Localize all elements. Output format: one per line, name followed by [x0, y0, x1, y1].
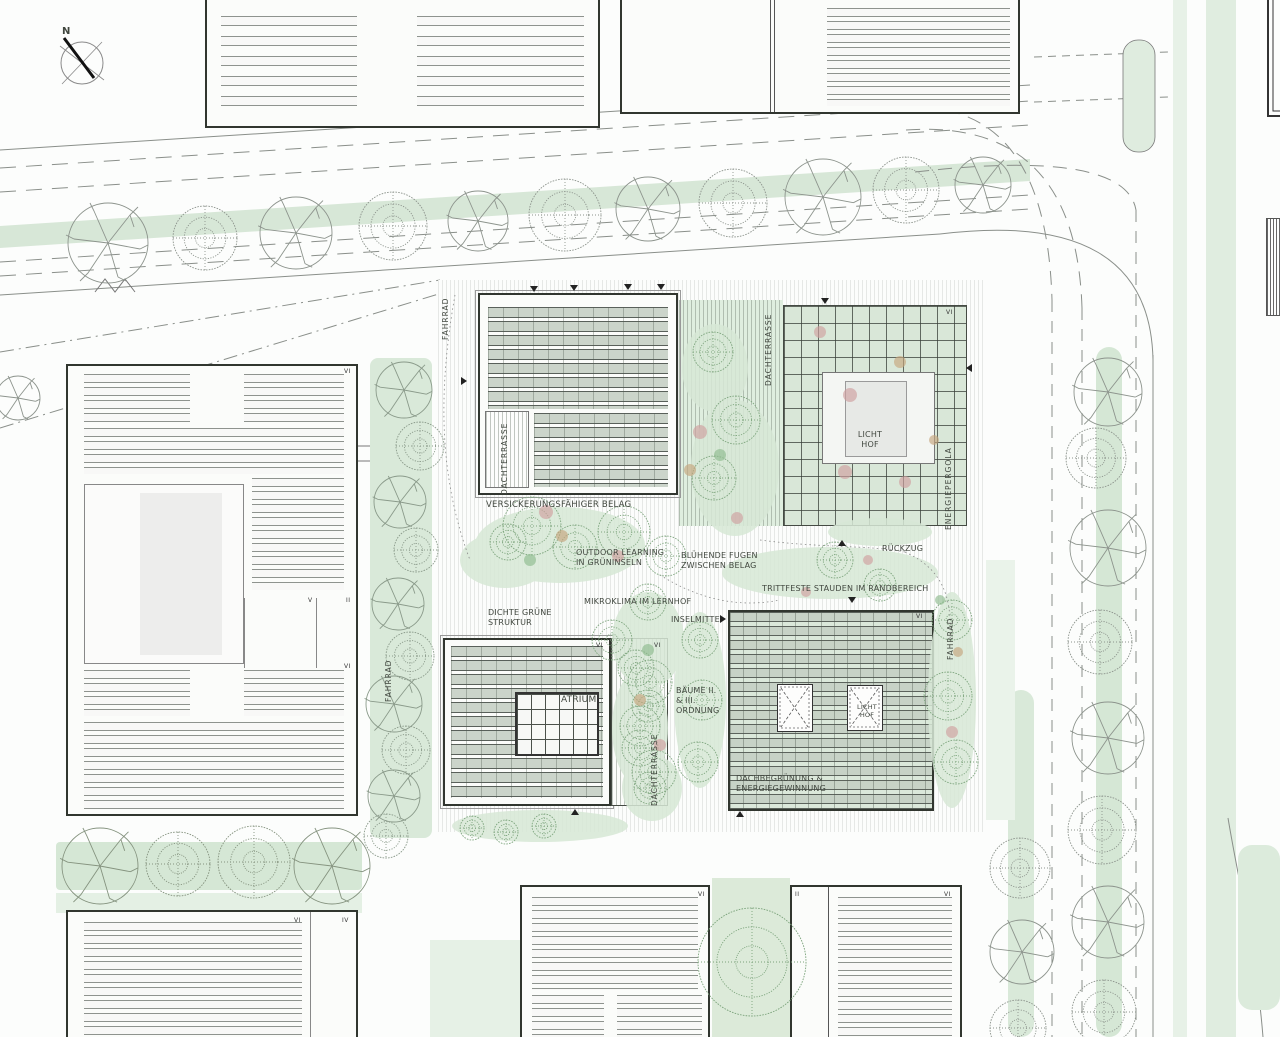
label-trittfeste: TRITTFESTE STAUDEN IM RANDBEREICH	[762, 584, 928, 594]
roof-stripes	[617, 995, 702, 1037]
roof-stripes	[532, 897, 698, 990]
roof-stripes	[84, 374, 190, 424]
light-court-ne	[822, 372, 935, 464]
label-rueckzug: RÜCKZUG	[882, 544, 923, 554]
storey-mark: II	[346, 597, 351, 604]
label-versickerung: VERSICKERUNGSFÄHIGER BELAG	[486, 500, 631, 511]
storey-mark: IV	[342, 917, 349, 924]
skylight-x	[778, 685, 811, 730]
roof-stripes	[827, 8, 1010, 106]
label-atrium: ATRIUM	[561, 695, 596, 706]
cross-road	[1008, 0, 1236, 1037]
storey-mark: VI	[596, 642, 603, 649]
label-dichte-gruene: DICHTE GRÜNE STRUKTUR	[488, 608, 552, 628]
green-verge-southeast	[1238, 845, 1280, 1010]
storey-mark: VI	[944, 891, 951, 898]
site-plan-canvas: N VERSICKERUNGSFÄHIGER BELAG OUTDOOR LEA…	[0, 0, 1280, 1037]
wall-line	[310, 912, 311, 1037]
label-energiepergola: ENERGIEPERGOLA	[944, 438, 954, 530]
label-bluehende-fugen: BLÜHENDE FUGEN ZWISCHEN BELAG	[681, 551, 758, 571]
context-building-north-b	[620, 0, 1020, 114]
roof-gap	[357, 0, 417, 126]
roof-stripes	[532, 995, 604, 1037]
label-baeume: BÄUME II. & III. ORDNUNG	[676, 686, 719, 716]
storey-mark: VI	[344, 663, 351, 670]
context-building-south-a	[66, 910, 358, 1037]
label-mikroklima: MIKROKLIMA IM LERNHOF	[584, 597, 691, 607]
campus-building-ne	[783, 305, 967, 526]
label-dachterrasse-ne: DACHTERRASSE	[764, 306, 774, 386]
green-strip-campus-west	[370, 358, 432, 838]
north-arrow	[40, 20, 130, 110]
context-building-south-c	[790, 885, 962, 1037]
solar-panels	[488, 307, 668, 409]
context-annex-hatched	[1266, 218, 1280, 316]
roof-stripes	[252, 478, 344, 590]
roof-stripes	[244, 670, 344, 716]
storey-mark: V	[308, 597, 313, 604]
green-wash-southwest	[430, 940, 520, 1037]
storey-mark: VI	[916, 613, 923, 620]
context-building-south-b	[520, 885, 710, 1037]
label-fahrrad-west: FAHRRAD	[384, 656, 394, 702]
solar-panels	[534, 413, 668, 487]
green-strip-tree-row	[56, 842, 362, 890]
context-building-north-a	[205, 0, 600, 128]
roof-stripes	[838, 897, 952, 1037]
wall-line	[244, 598, 245, 668]
roof-stripes	[84, 722, 344, 812]
roof-stripes	[84, 670, 190, 716]
label-fahrrad-top: FAHRRAD	[441, 296, 451, 340]
label-licht-hof-ne: LICHT HOF	[852, 430, 888, 450]
storey-mark: VI	[946, 309, 953, 316]
label-licht-hof-se: LICHT HOF	[847, 703, 887, 719]
storey-mark: VI	[294, 917, 301, 924]
roof-stripes	[84, 922, 302, 1037]
label-inselmitte: INSELMITTE	[671, 615, 720, 625]
green-band-south	[712, 878, 790, 1037]
wall-line	[316, 598, 317, 668]
north-label: N	[62, 26, 71, 39]
light-court-se-1	[777, 684, 813, 732]
storey-mark: VI	[344, 368, 351, 375]
courtyard-core	[140, 493, 222, 655]
label-dachterrasse-nw: DACHTERRASSE	[500, 415, 510, 495]
roof-stripes	[244, 374, 344, 424]
label-outdoor-learning: OUTDOOR LEARNING IN GRÜNINSELN	[576, 548, 664, 568]
storey-mark: II	[795, 891, 800, 898]
roof-stripes	[84, 428, 344, 474]
storey-mark: VI	[654, 642, 661, 649]
corner-building-outline	[1268, 0, 1280, 116]
crosswalk	[1034, 40, 1168, 152]
roof-joint	[770, 0, 775, 112]
wall-line	[828, 887, 829, 1037]
storey-mark: VI	[698, 891, 705, 898]
label-dachbegruenung: DACHBEGRÜNUNG & ENERGIEGEWINNUNG	[736, 774, 826, 794]
traffic-island	[1123, 40, 1155, 152]
context-building-west	[66, 364, 358, 816]
north-arrow-icon	[40, 20, 130, 110]
label-dachterrasse-sw: DACHTERRASSE	[650, 726, 660, 806]
courtyard	[84, 484, 244, 664]
label-fahrrad-east: FAHRRAD	[946, 610, 956, 660]
campus-building-sw	[443, 638, 611, 806]
green-wash-campus-east	[985, 560, 1015, 820]
